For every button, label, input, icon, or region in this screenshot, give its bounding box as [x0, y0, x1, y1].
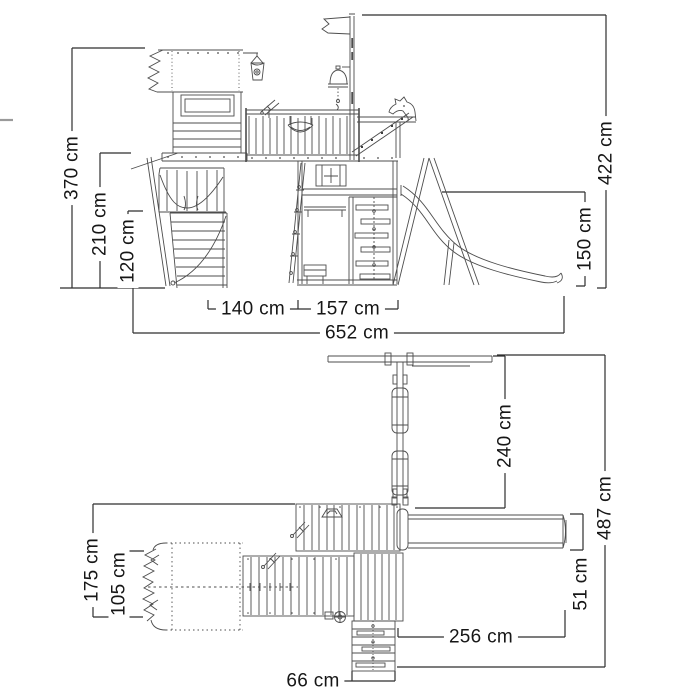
side-elevation-view — [0, 14, 606, 333]
dim-label-slide-length: 256 cm — [444, 627, 518, 648]
screw-dots — [167, 52, 239, 54]
bell-icon — [328, 66, 350, 110]
bucket-pulley-icon — [243, 53, 264, 80]
tunnel-crinkle — [143, 549, 156, 621]
bench — [304, 265, 326, 276]
saddle-dip — [160, 175, 223, 208]
dim-label-section-width-right: 157 cm — [311, 299, 385, 320]
dim-label-tunnel-width: 105 cm — [109, 547, 130, 621]
rope-bridge — [246, 100, 359, 162]
swing-seats — [392, 388, 408, 495]
hatch-icon — [322, 509, 342, 517]
dim-label-swing-depth: 240 cm — [495, 399, 516, 473]
dim-label-total-depth: 487 cm — [595, 471, 616, 545]
top-plan-view — [93, 353, 605, 681]
dim-line-150 — [442, 192, 585, 286]
dim-label-slide-width: 51 cm — [571, 552, 592, 615]
sand-table — [304, 207, 346, 217]
shuttered-window — [316, 165, 346, 186]
mid-floor — [302, 189, 397, 195]
slide-side — [401, 185, 562, 285]
tarp-crinkle — [148, 50, 163, 92]
telescope-icon-plan-1 — [291, 522, 310, 538]
dim-label-total-height: 370 cm — [62, 131, 83, 205]
swing-beam-horse — [352, 97, 416, 158]
lower-deck-plan — [354, 553, 403, 621]
slat-panel-frame — [159, 174, 226, 212]
dim-label-total-length: 652 cm — [320, 323, 394, 344]
panel-slats — [167, 170, 217, 211]
tower-planks — [173, 123, 241, 147]
crows-nest-tower — [148, 50, 247, 161]
climb-wall-frame — [170, 213, 227, 288]
stairs-plan — [352, 621, 395, 671]
dim-label-climb-wall-height: 120 cm — [118, 214, 139, 288]
ground-beam — [297, 280, 397, 285]
dim-line-51 — [570, 514, 583, 550]
swing-plan — [328, 353, 492, 503]
slide-support — [444, 240, 454, 285]
telescope-icon-plan-2 — [262, 553, 281, 569]
dim-label-walkway-height: 210 cm — [90, 187, 111, 261]
tower-posts — [298, 161, 397, 284]
diagram-line-art — [0, 0, 700, 700]
nest-basket-icon — [288, 116, 313, 132]
boat-swing-and-climb-wall — [131, 153, 227, 288]
telescope-icon — [261, 100, 279, 118]
upper-deck-plan — [296, 497, 408, 551]
slide-plan — [397, 509, 566, 550]
climb-wall-planks — [171, 222, 227, 285]
swing-beam — [397, 362, 403, 503]
flag-icon — [322, 17, 350, 34]
dim-label-left-depth: 175 cm — [82, 533, 103, 607]
dim-label-overall-height-right: 422 cm — [596, 116, 617, 190]
dim-line-422 — [362, 15, 606, 288]
flag-pole — [322, 14, 355, 160]
tower-window — [181, 95, 234, 116]
dim-label-stairs-width: 66 cm — [281, 671, 344, 692]
knotted-rope — [289, 163, 305, 283]
slide-end-cap — [563, 515, 566, 548]
slide-entry — [397, 509, 408, 550]
diagonal-brace — [352, 113, 413, 156]
playground-dimension-diagram: 370 cm 210 cm 120 cm 422 cm 150 cm 140 c… — [0, 0, 700, 700]
dim-line-66 — [341, 671, 395, 681]
aframe-crossbar — [328, 356, 492, 362]
playhouse-tower — [246, 157, 398, 285]
dim-label-section-width-left: 140 cm — [216, 299, 290, 320]
dim-label-platform-height: 150 cm — [575, 202, 596, 276]
rope-swoosh — [174, 216, 226, 283]
stairs-side — [349, 197, 397, 284]
dim-line-240 — [415, 356, 505, 508]
